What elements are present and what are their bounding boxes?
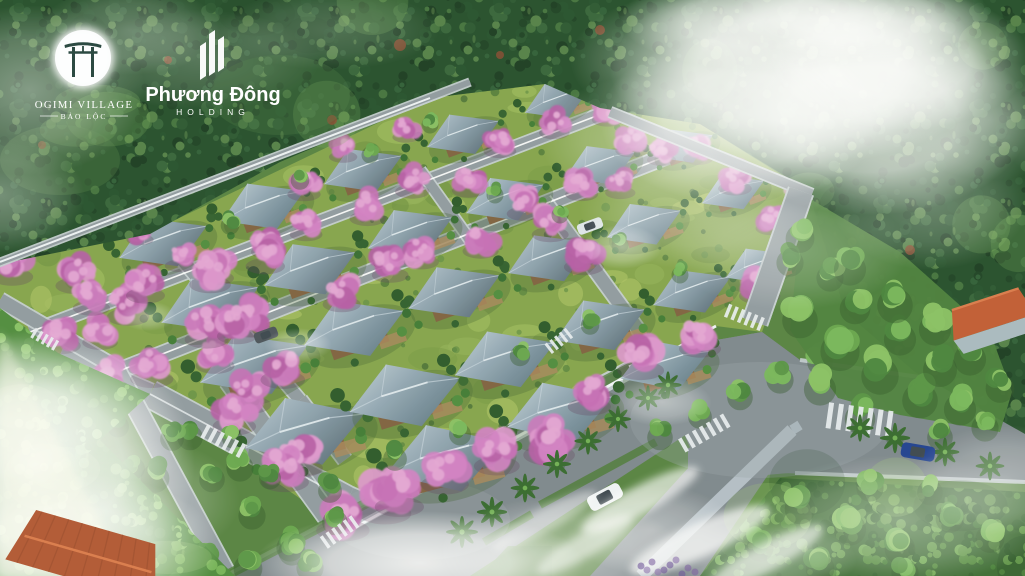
- svg-text:Phương Đông: Phương Đông: [145, 84, 280, 106]
- svg-text:BẢO LỘC: BẢO LỘC: [61, 111, 108, 121]
- svg-text:HOLDING: HOLDING: [176, 107, 250, 117]
- svg-text:OGIMI VILLAGE: OGIMI VILLAGE: [35, 99, 134, 111]
